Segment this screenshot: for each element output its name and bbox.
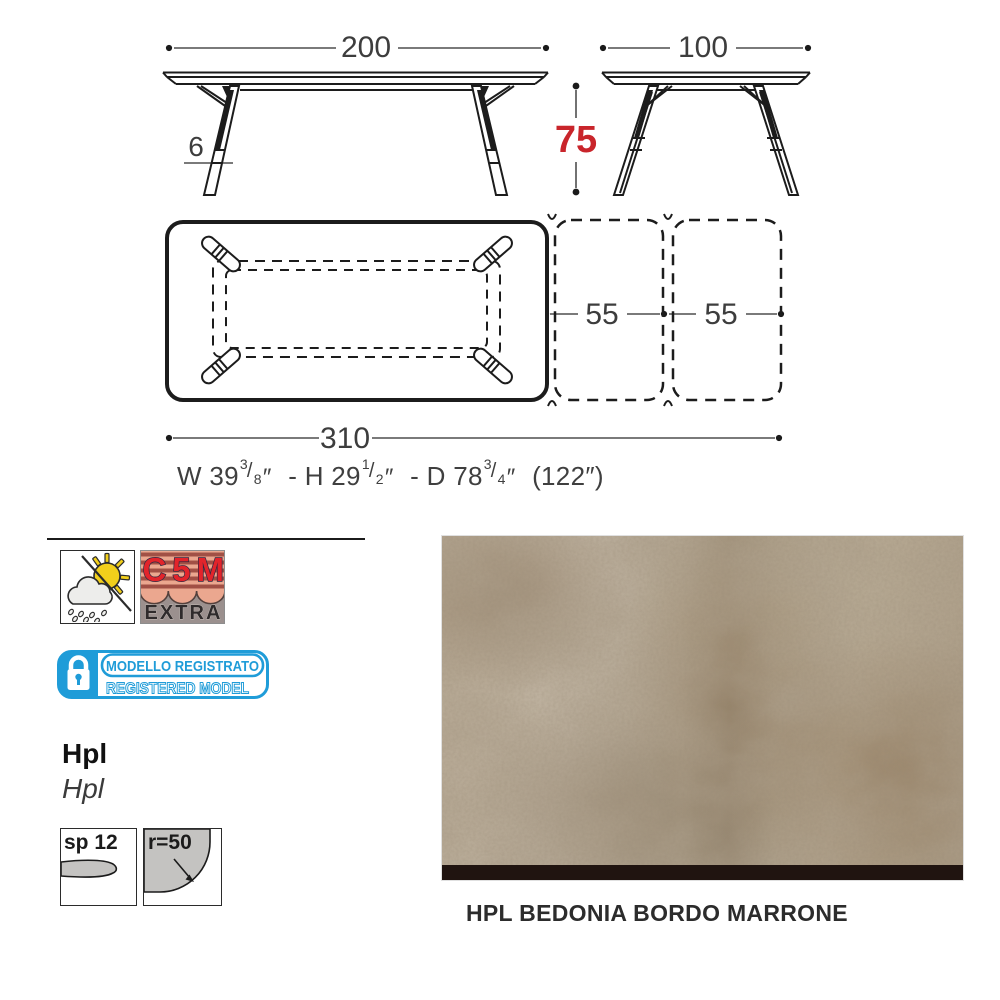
thickness-label: sp 12 [64,831,118,854]
corner-radius-badge: r=50 [143,828,222,906]
corrosion-class-label: C5M [143,551,223,588]
dim-extension-right: 55 [704,298,737,331]
front-view [163,73,548,196]
product-spec-sheet: 200 100 75 6 55 55 310 W 393/8″ - H 291/… [0,0,1000,1000]
corner-radius-label: r=50 [148,831,192,854]
side-view [602,73,810,196]
technical-drawing: 200 100 75 6 55 55 310 [0,0,1000,520]
dim-leg-thickness: 6 [188,131,204,162]
registered-model-en-label: REGISTERED MODEL [106,681,249,698]
dim-extension-left: 55 [585,298,618,331]
registered-model-badge: MODELLO REGISTRATO REGISTERED MODEL [57,650,269,699]
corrosion-class-badge: C5M EXTRA [140,550,225,624]
height-fraction: 1/2 [361,461,385,487]
hpl-texture-image [442,536,963,865]
corrosion-class-sub-label: EXTRA [145,602,221,624]
dim-total-length: 310 [320,422,370,455]
dim-height: 75 [555,119,597,161]
dim-width-front: 200 [341,31,391,64]
dim-depth-side: 100 [678,31,728,64]
inch-mark: ″ [263,464,272,491]
width-fraction: 3/8 [239,461,263,487]
top-view [167,214,781,406]
sun-cloud-rain-icon [61,551,133,622]
section-divider [47,538,365,540]
corner-radius-icon: r=50 [144,829,220,904]
brown-edge-strip [442,865,963,880]
material-name-secondary: Hpl [62,773,104,805]
imperial-dimensions: W 393/8″ - H 291/2″ - D 783/4″ (122″) [177,461,604,492]
registered-model-it-label: MODELLO REGISTRATO [106,658,259,675]
total-length-imperial: (122″) [532,461,604,491]
depth-imperial: - D 78 [410,461,483,491]
inch-mark: ″ [385,464,394,491]
weather-resistance-badge [60,550,135,624]
inch-mark: ″ [507,464,516,491]
height-imperial: - H 29 [288,461,361,491]
width-imperial: W 39 [177,461,239,491]
depth-fraction: 3/4 [483,461,507,487]
thickness-badge: sp 12 [60,828,137,906]
c5m-extra-icon: C5M EXTRA [140,550,225,624]
finish-caption: HPL BEDONIA BORDO MARRONE [466,900,848,927]
edge-profile-icon: sp 12 [61,829,135,904]
material-swatch [442,536,963,880]
material-name: Hpl [62,738,107,770]
